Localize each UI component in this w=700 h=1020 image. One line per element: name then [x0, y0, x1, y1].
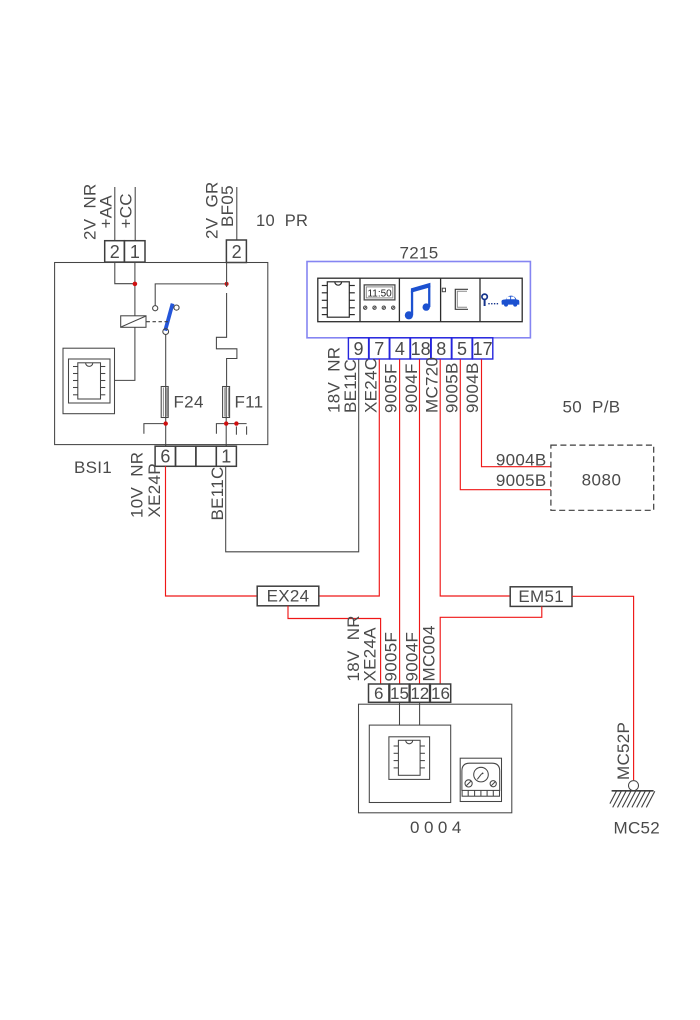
svg-text:50 P/B: 50 P/B [563, 397, 621, 416]
svg-text:EX24: EX24 [267, 586, 310, 605]
svg-text:BE11C: BE11C [208, 466, 227, 520]
svg-text:MC52: MC52 [614, 819, 661, 838]
svg-text:10 PR: 10 PR [256, 212, 308, 230]
svg-text:9005F: 9005F [382, 632, 401, 682]
svg-text:16: 16 [431, 684, 450, 703]
svg-text:1: 1 [221, 447, 231, 467]
svg-text:12: 12 [410, 684, 429, 703]
svg-text:2: 2 [232, 242, 242, 262]
svg-text:BSI1: BSI1 [74, 458, 112, 477]
svg-text:F11: F11 [235, 393, 264, 412]
svg-text:10V NR: 10V NR [127, 452, 146, 518]
svg-text:9005F: 9005F [382, 363, 401, 413]
svg-text:1: 1 [130, 242, 140, 262]
svg-text:9004F: 9004F [402, 363, 421, 413]
svg-text:XE24P: XE24P [145, 463, 164, 517]
svg-text:XE24A: XE24A [360, 627, 379, 682]
svg-text:BF05: BF05 [218, 185, 237, 227]
svg-text:7215: 7215 [400, 244, 439, 263]
svg-text:5: 5 [457, 339, 467, 359]
svg-text:9: 9 [353, 339, 363, 359]
svg-text:8: 8 [436, 339, 446, 359]
svg-text:9005B: 9005B [443, 362, 462, 413]
svg-text:9004B: 9004B [496, 450, 547, 469]
svg-text:BE11C: BE11C [341, 359, 360, 413]
svg-text:7: 7 [374, 339, 384, 359]
svg-text:8080: 8080 [582, 471, 622, 490]
svg-text:MC004: MC004 [419, 625, 438, 681]
svg-text:2: 2 [110, 242, 120, 262]
svg-text:15: 15 [390, 684, 409, 703]
svg-text:0004: 0004 [410, 818, 466, 837]
svg-text:6: 6 [374, 684, 383, 703]
svg-text:17: 17 [473, 339, 493, 359]
svg-text:MC720: MC720 [423, 357, 442, 413]
svg-text:11:50: 11:50 [367, 289, 392, 300]
svg-text:18: 18 [411, 339, 431, 359]
svg-text:9004B: 9004B [463, 362, 482, 413]
svg-text:EM51: EM51 [518, 587, 564, 606]
svg-text:F24: F24 [174, 393, 204, 412]
svg-text:9005B: 9005B [496, 471, 547, 490]
svg-text:XE24C: XE24C [362, 358, 381, 413]
svg-text:+AA: +AA [97, 195, 116, 229]
svg-text:MC52P: MC52P [614, 722, 633, 780]
svg-text:4: 4 [395, 339, 405, 359]
svg-text:+CC: +CC [117, 193, 136, 228]
